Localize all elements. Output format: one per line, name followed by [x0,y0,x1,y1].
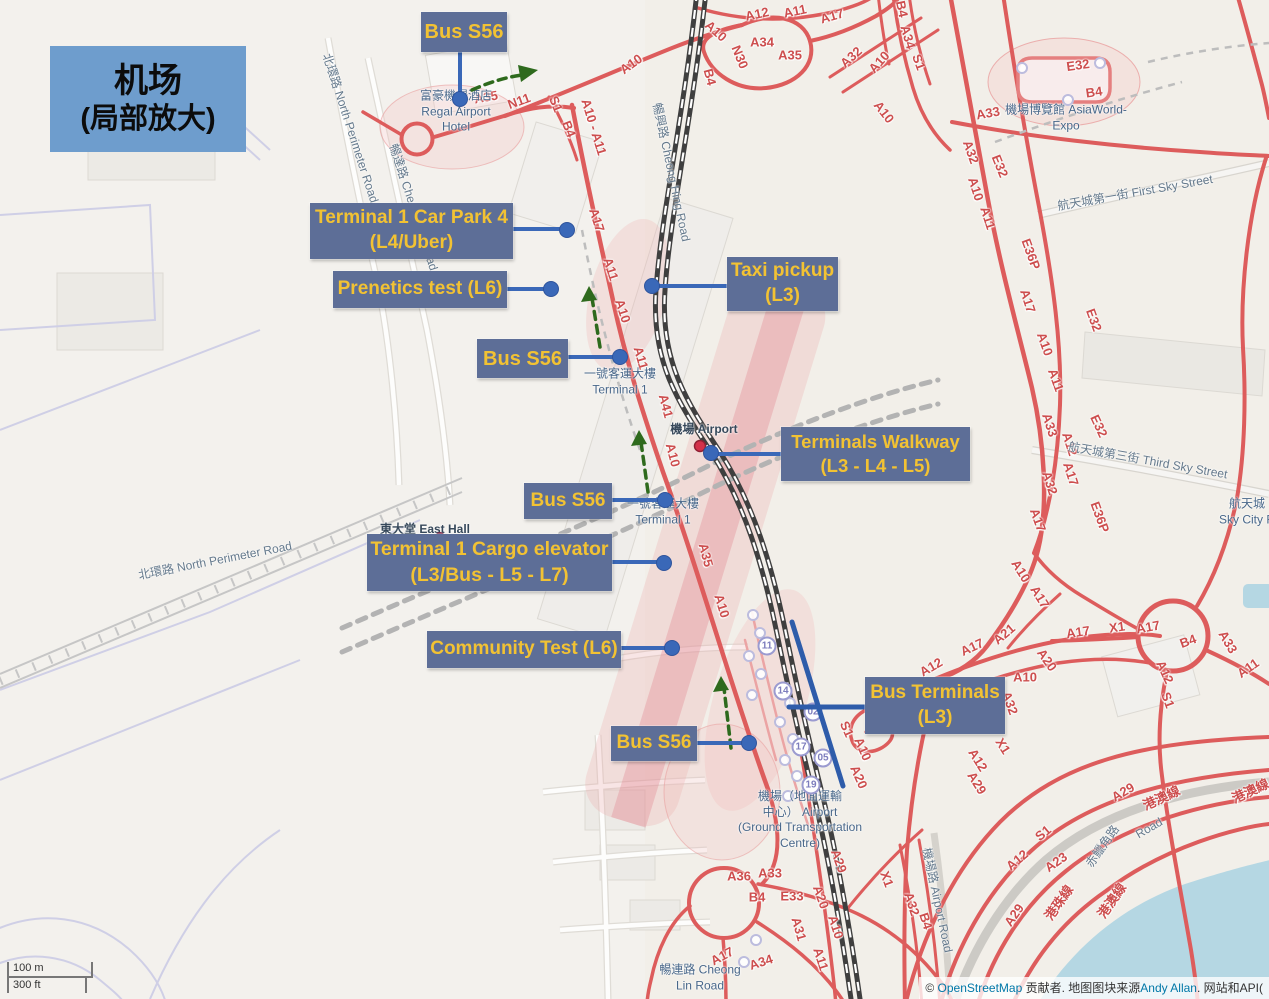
scale-metric: 100 m [7,962,93,979]
label-community-test: Community Test (L6) [427,631,621,668]
bus-stop-dot [1062,94,1074,106]
label-text: Bus Terminals [870,681,1000,706]
label-bus-s56-4: Bus S56 [611,726,697,761]
bus-stop-dot [774,716,786,728]
map-title: 机场 (局部放大) [50,46,246,152]
bus-stop-14[interactable]: 14 [774,682,793,701]
label-terminals-walkway: Terminals Walkway (L3 - L4 - L5) [781,427,970,481]
bus-stop-dot [743,650,755,662]
scale-imperial: 300 ft [7,978,87,993]
bus-stop-dot [791,770,803,782]
bus-stop-19[interactable]: 19 [802,776,821,795]
label-taxi-pickup: Taxi pickup (L3) [727,257,838,311]
label-text: (L3 - L4 - L5) [821,454,931,478]
label-text: Terminal 1 Cargo elevator [370,537,608,562]
scale-control: 100 m 300 ft [7,962,93,994]
bus-stop-dot [755,668,767,680]
bus-stop-dot [746,689,758,701]
attribution-text: . 网站和API( [1197,981,1263,995]
label-bus-s56-2: Bus S56 [477,339,568,378]
attribution-text: 贡献者. 地图图块来源 [1022,981,1140,995]
label-bus-s56-3: Bus S56 [524,483,612,519]
map-app[interactable]: A12A11A17A10B4N30A34A35A32A10B4A34S1A10A… [0,0,1269,999]
label-text: Community Test (L6) [430,637,618,662]
label-text: Prenetics test (L6) [338,277,503,302]
bus-stop-dot [738,956,750,968]
label-bus-s56-top: Bus S56 [421,12,507,52]
label-text: Bus S56 [483,346,562,372]
label-text: Bus S56 [531,489,606,514]
label-text: (L3/Bus - L5 - L7) [410,563,568,588]
attribution-bar: © OpenStreetMap 贡献者. 地图图块来源Andy Allan. 网… [919,977,1269,999]
map-title-line1: 机场 [50,61,246,102]
openstreetmap-link[interactable]: OpenStreetMap [938,981,1023,995]
attribution-text: © [925,981,937,995]
bus-stop-02[interactable]: 02 [804,703,823,722]
bus-stop-dot [782,790,794,802]
bus-stop-dot [779,754,791,766]
bus-stop-dot [750,934,762,946]
label-text: Bus S56 [425,19,504,45]
label-cargo-elevator: Terminal 1 Cargo elevator (L3/Bus - L5 -… [367,534,612,591]
label-text: Terminals Walkway [791,430,960,454]
bus-stop-dot [1094,57,1106,69]
label-prenetics-test: Prenetics test (L6) [333,271,507,308]
label-bus-terminals: Bus Terminals (L3) [865,677,1005,734]
bus-stop-dot [747,609,759,621]
label-text: (L3) [918,706,953,731]
andy-allan-link[interactable]: Andy Allan [1140,981,1197,995]
bus-stop-17[interactable]: 17 [792,738,811,757]
map-title-line2: (局部放大) [50,102,246,137]
label-text: Terminal 1 Car Park 4 [315,206,508,231]
bus-stop-11[interactable]: 11 [758,637,777,656]
label-text: Taxi pickup [731,259,834,284]
label-text: (L4/Uber) [370,231,453,256]
label-text: Bus S56 [617,731,692,756]
label-terminal1-car-park: Terminal 1 Car Park 4 (L4/Uber) [310,203,513,259]
bus-stop-05[interactable]: 05 [814,749,833,768]
bus-stop-dot [1016,62,1028,74]
label-text: (L3) [765,284,800,309]
